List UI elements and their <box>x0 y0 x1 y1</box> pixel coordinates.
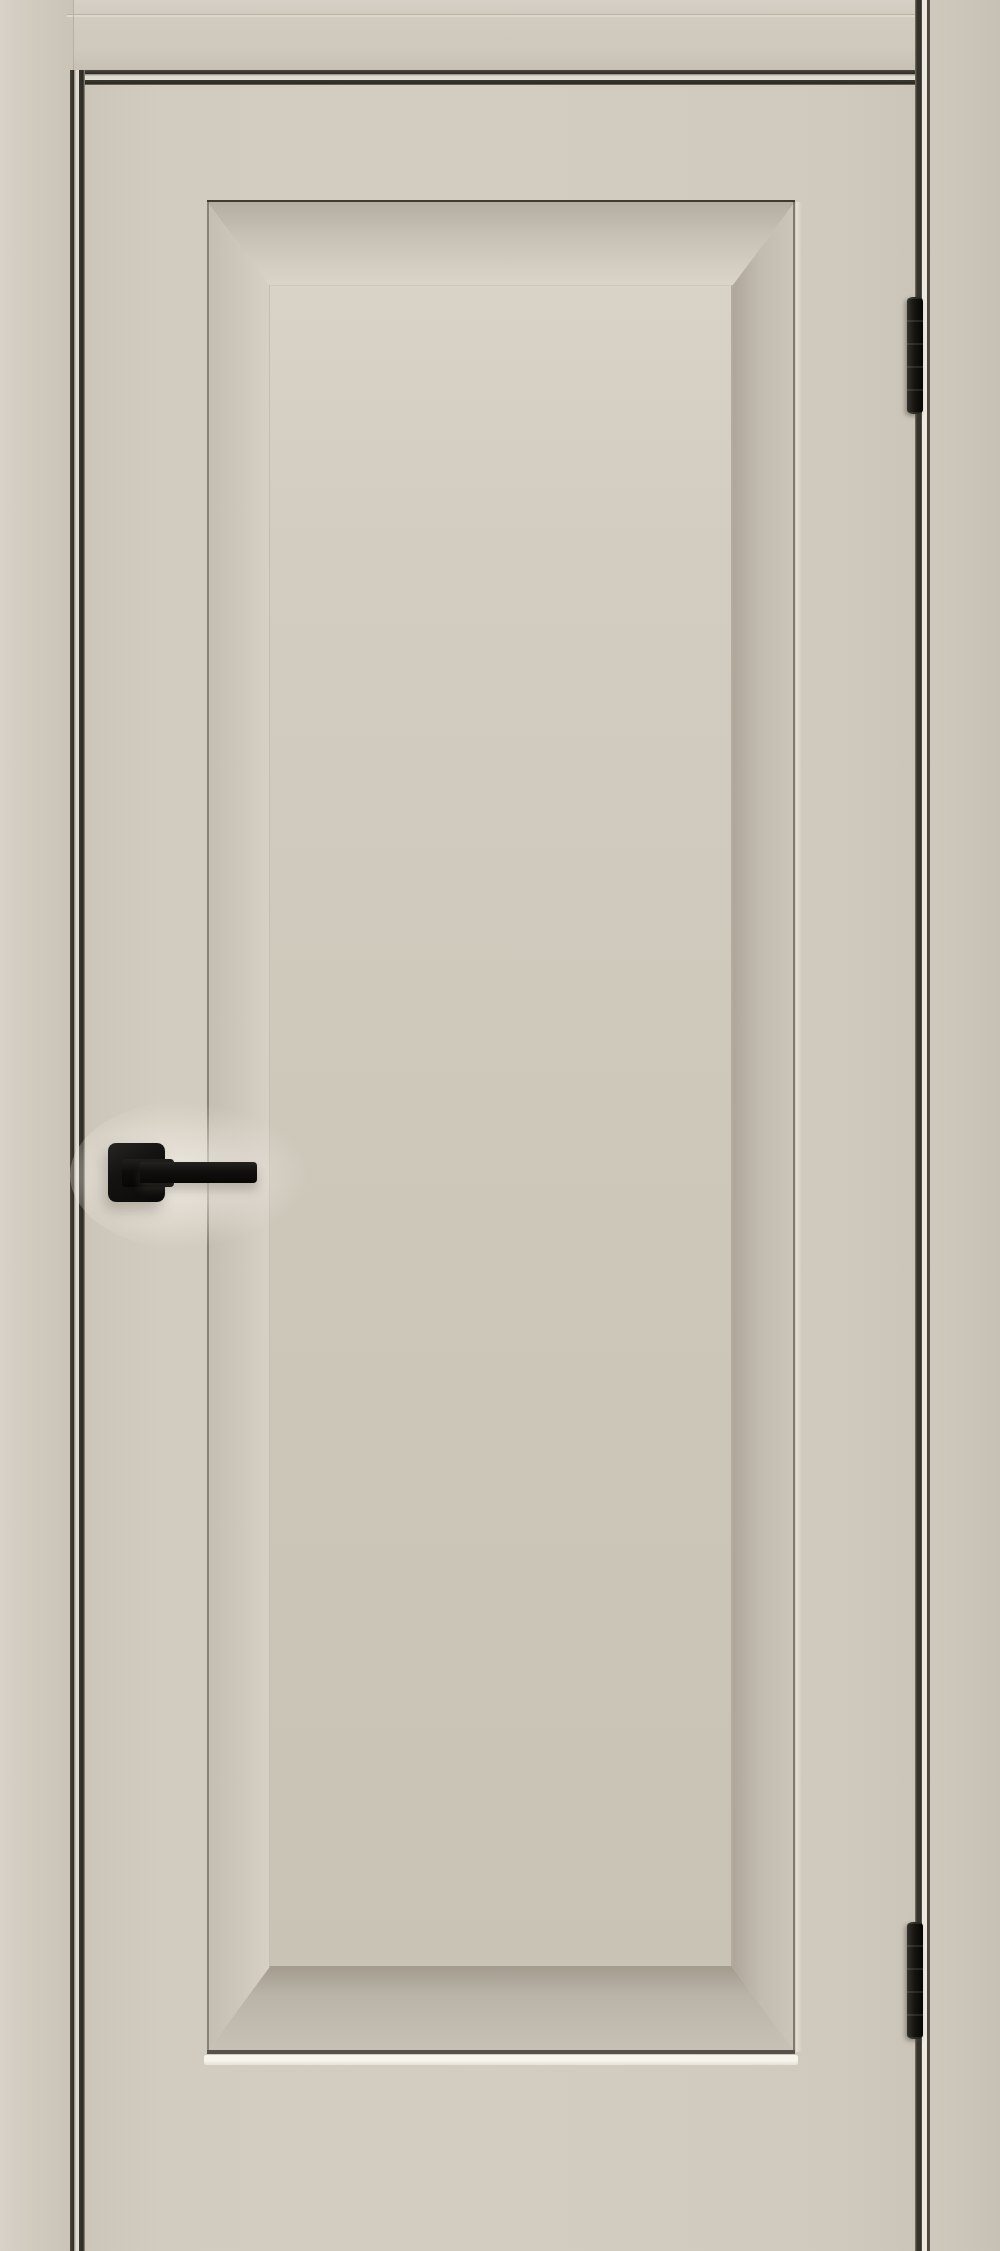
recessed-panel <box>207 200 795 2056</box>
door-frame-left-jamb <box>0 0 73 2251</box>
panel-bevel-right <box>732 200 795 2056</box>
panel-bevel-top <box>207 200 795 286</box>
frame-head-seam-line <box>67 14 922 17</box>
panel-under-highlight <box>204 2055 798 2065</box>
handle-lever <box>140 1162 257 1183</box>
hinge-top <box>907 297 923 414</box>
door-frame-right-jamb <box>930 0 1000 2251</box>
panel-edge-line-top <box>207 200 795 202</box>
door-frame-head <box>73 0 922 71</box>
panel-edge-line-bottom <box>207 2050 795 2054</box>
frame-corner-joint-line <box>73 0 74 71</box>
door-gap-top <box>70 70 922 85</box>
door-product-photo <box>0 0 1000 2251</box>
hinge-bottom <box>907 1922 923 2039</box>
panel-right-highlight <box>796 202 802 2052</box>
panel-edge-line-right <box>793 202 795 2052</box>
panel-inner-face <box>269 285 733 1968</box>
panel-bevel-bottom <box>207 1966 795 2056</box>
